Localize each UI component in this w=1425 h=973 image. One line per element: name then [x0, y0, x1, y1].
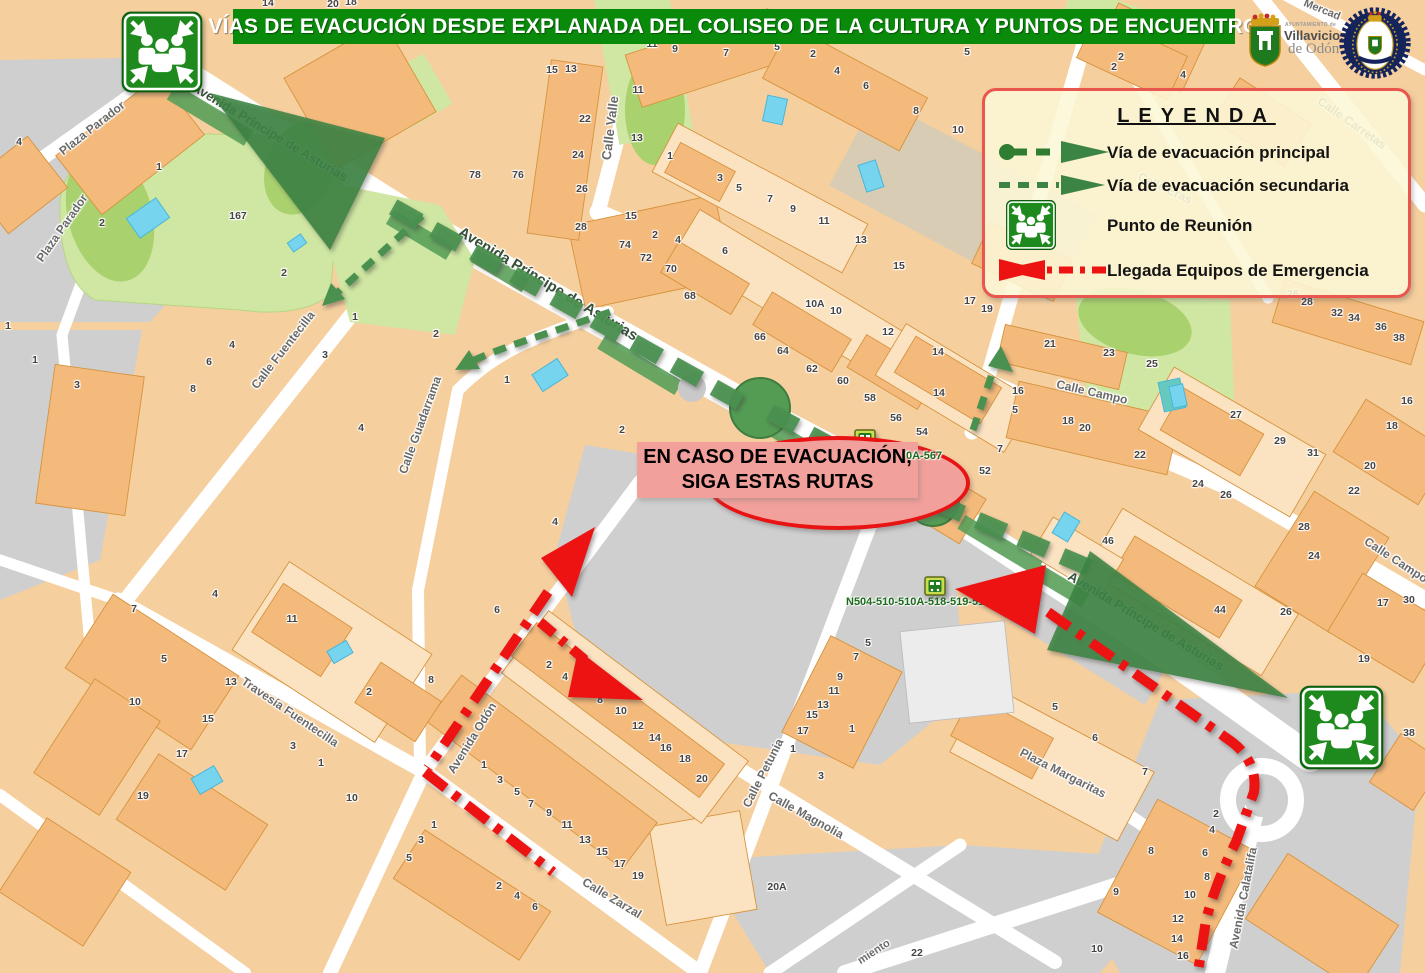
evacuation-callout: EN CASO DE EVACUACIÓN, SIGA ESTAS RUTAS	[637, 442, 918, 498]
red-arrow-to-explanada	[541, 527, 595, 597]
legend-title: LEYENDA	[985, 105, 1408, 128]
police-badge	[1334, 2, 1416, 84]
meeting-point-icon	[1301, 687, 1383, 769]
emergency-arrival-icon	[997, 257, 1117, 283]
callout-line2: SIGA ESTAS RUTAS	[682, 470, 874, 495]
bus-stop-icon	[925, 577, 945, 595]
red-arrow-from-calatalifa	[955, 565, 1046, 634]
legend-item-emergency: Llegada Equipos de Emergencia	[1107, 261, 1369, 281]
meeting-point-icon	[1005, 199, 1057, 251]
secondary-evacuation-routes	[322, 216, 1013, 430]
red-arrow-south-entrance	[568, 650, 643, 700]
principal-route-icon	[997, 139, 1117, 165]
secondary-route-icon	[997, 172, 1117, 198]
municipality-name-2: de Odón	[1288, 41, 1339, 58]
callout-line1: EN CASO DE EVACUACIÓN,	[643, 445, 912, 470]
legend-item-principal: Vía de evacuación principal	[1107, 143, 1330, 163]
legend-item-meeting-point: Punto de Reunión	[1107, 216, 1252, 236]
title-banner: VÍAS DE EVACUCIÓN DESDE EXPLANADA DEL CO…	[233, 9, 1235, 44]
principal-arrow-northwest	[210, 93, 385, 250]
legend: LEYENDA Vía de evacuación principal Vía …	[982, 88, 1411, 298]
bus-stop-label: 0A-567	[906, 450, 942, 462]
legend-item-secondary: Vía de evacuación secundaria	[1107, 176, 1349, 196]
meeting-point-icon	[123, 13, 202, 92]
evacuation-map-page: Plaza ParadorPlaza ParadorAvenida Prínci…	[0, 0, 1425, 973]
principal-arrow-southeast	[1047, 551, 1288, 698]
